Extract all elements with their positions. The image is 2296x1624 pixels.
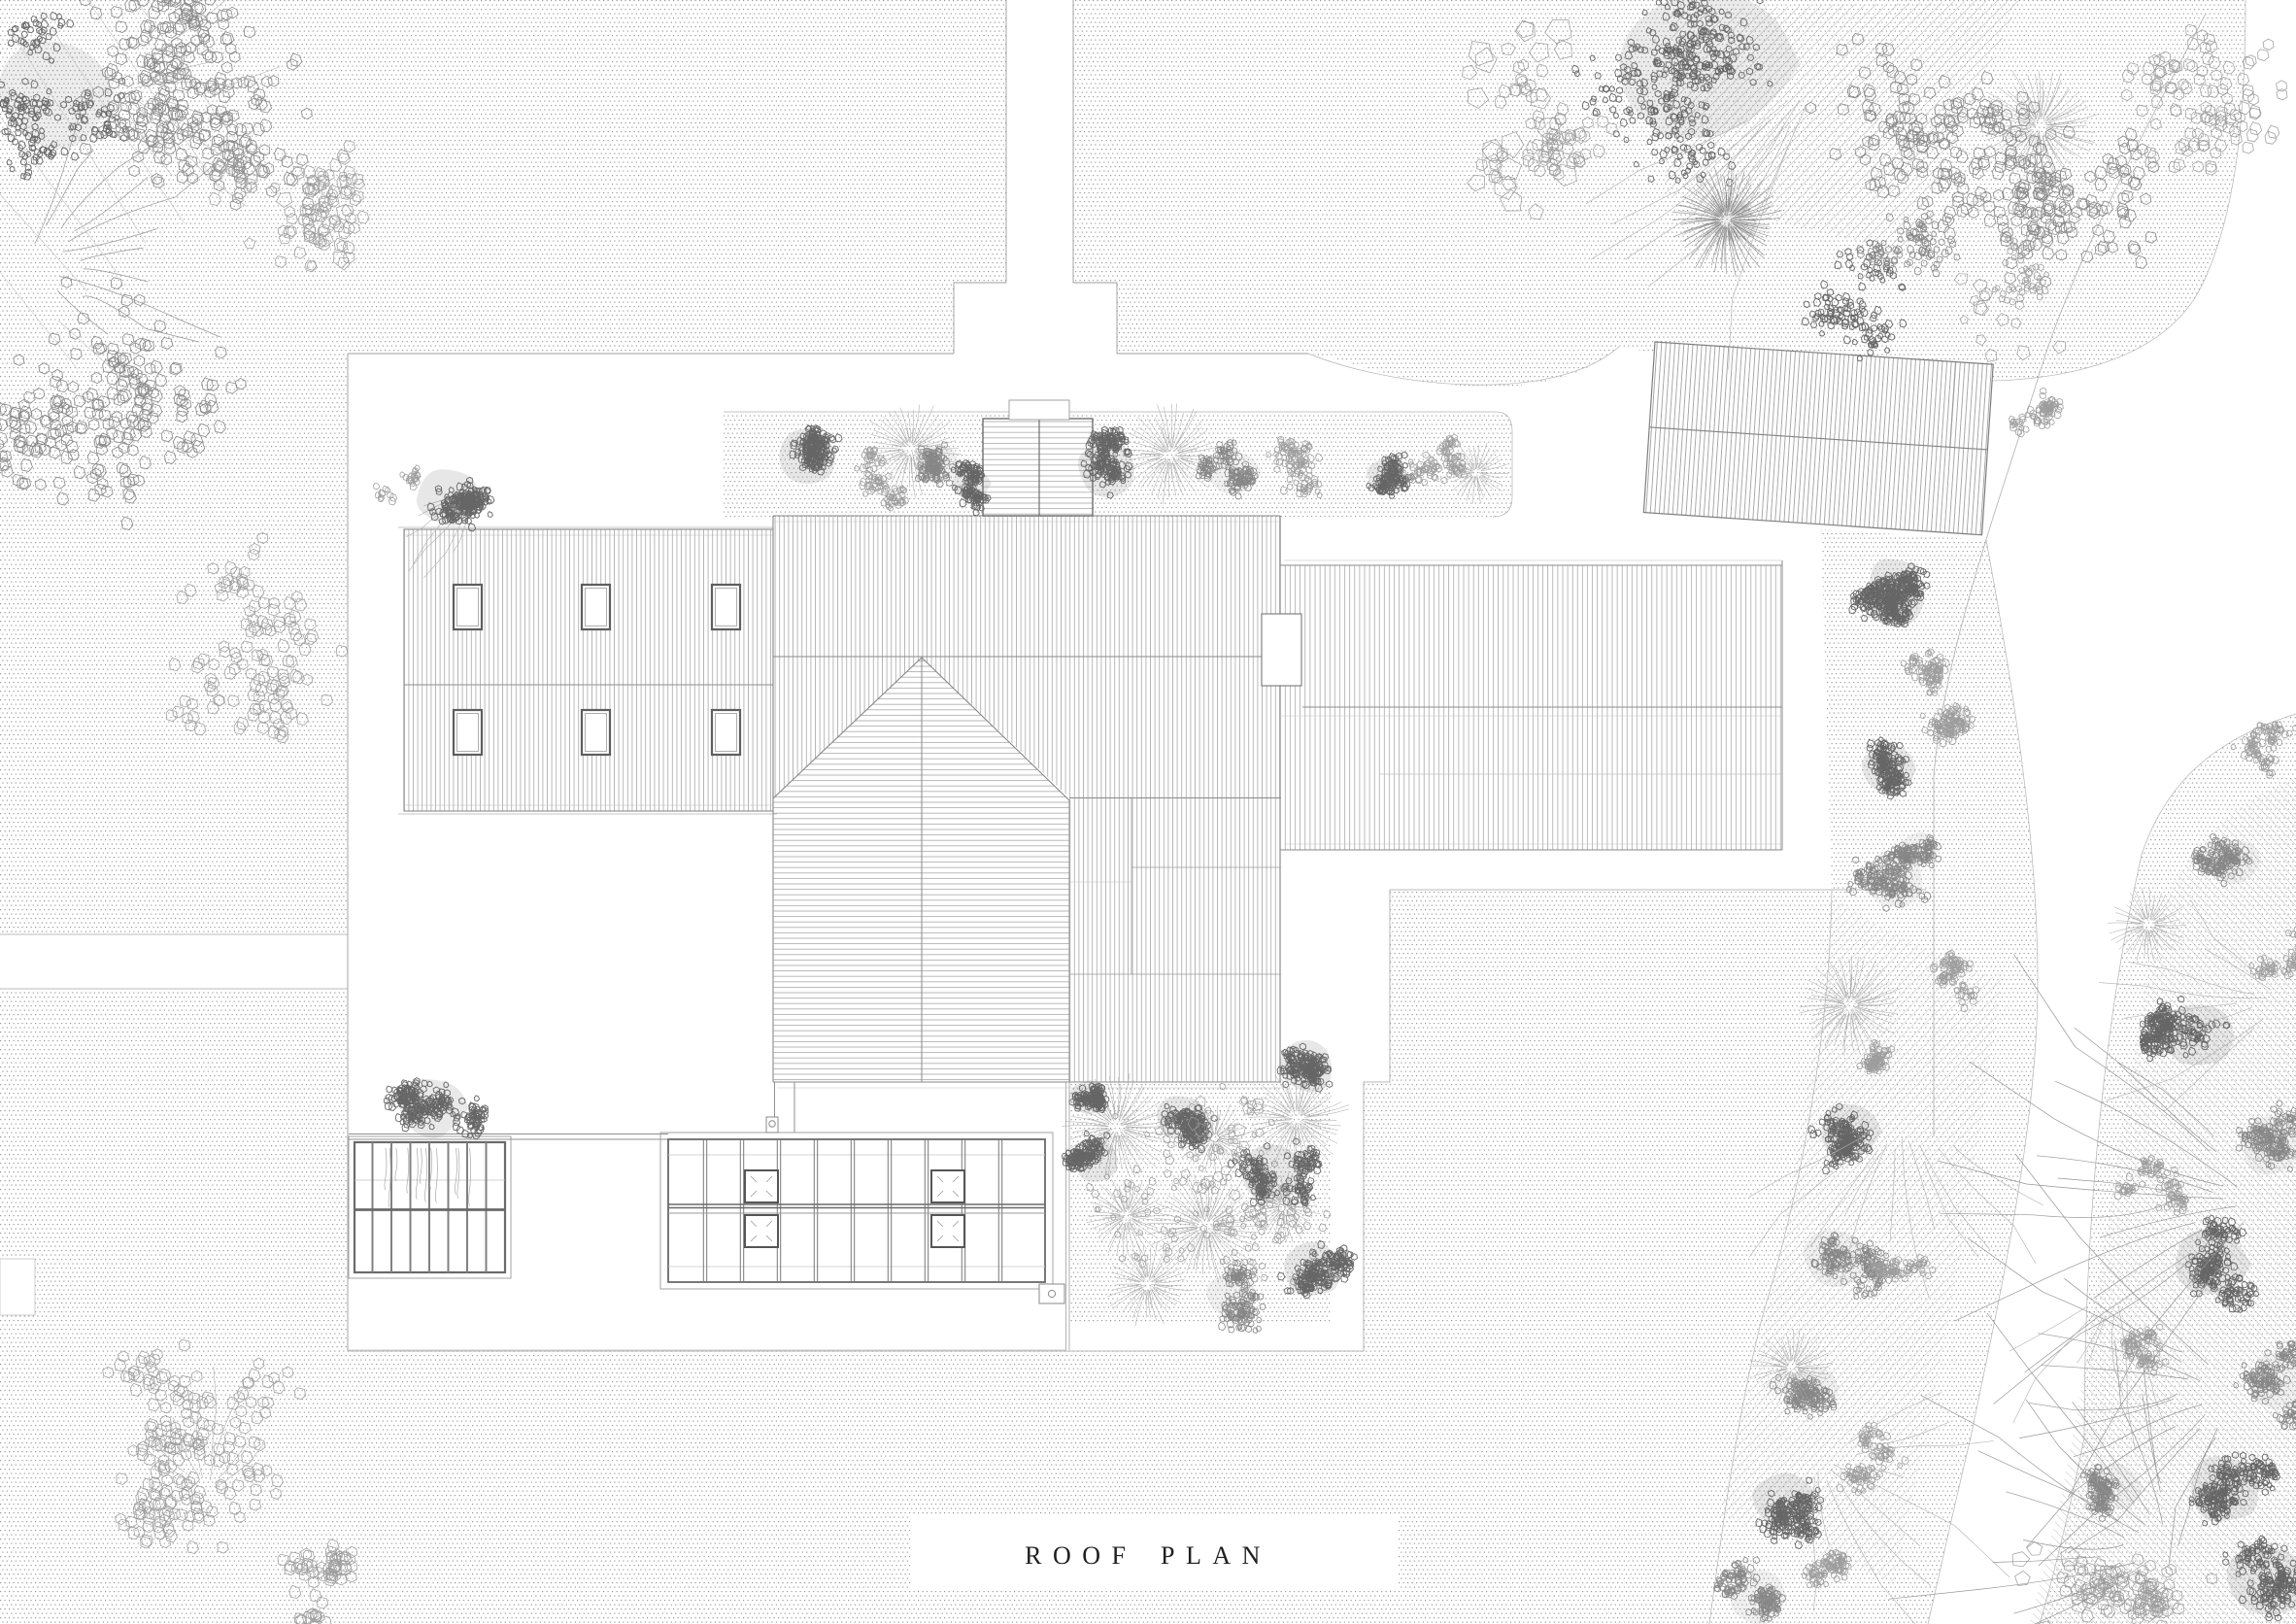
svg-text:ROOF PLAN: ROOF PLAN bbox=[1025, 1541, 1271, 1570]
